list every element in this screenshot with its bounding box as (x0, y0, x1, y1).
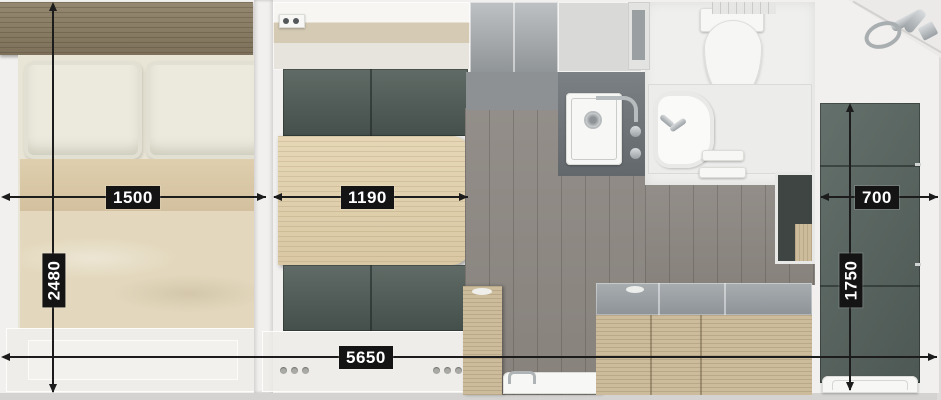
kitchen-unit-top (596, 283, 812, 315)
speaker-grille-left (280, 367, 309, 374)
arrow-left-icon (820, 193, 829, 201)
dim-line-overall-length (3, 356, 937, 358)
kitchen-unit-front (596, 315, 812, 395)
dinette-bench-bottom (283, 265, 468, 331)
dim-label-bed-width: 1500 (106, 186, 160, 209)
dim-label-wardrobe-width: 700 (855, 186, 899, 209)
arrow-left-icon (1, 193, 10, 201)
pillow-left (24, 61, 142, 159)
arrow-down-icon (49, 384, 57, 393)
arrow-right-icon (257, 193, 266, 201)
speaker-grille-right (433, 367, 462, 374)
towel-shelf-1 (702, 150, 744, 161)
pillow-right (146, 61, 264, 159)
arrow-up-icon (846, 103, 854, 112)
bathroom-roof-vent (712, 2, 776, 14)
arrow-left-icon (273, 193, 282, 201)
dim-label-wardrobe-depth: 1750 (839, 254, 862, 308)
headboard-shelf (0, 2, 253, 55)
refrigerator-cabinet (463, 286, 502, 395)
bathroom-tall-cabinet (628, 2, 650, 70)
roof-vent-icon (279, 14, 305, 28)
dim-label-overall-length: 5650 (339, 346, 393, 369)
dinette-bench-top (283, 69, 468, 136)
caravan-floorplan: 2480 1500 1190 700 1750 5650 (0, 0, 941, 400)
kitchen-overhead-lockers (470, 2, 558, 74)
arrow-down-icon (846, 382, 854, 391)
dim-label-bedroom-depth: 2480 (42, 254, 65, 308)
arrow-right-icon (928, 353, 937, 361)
arrow-right-icon (929, 193, 938, 201)
towel-shelf-2 (699, 167, 746, 178)
dim-label-table-length: 1190 (341, 186, 394, 209)
wardrobe (820, 103, 920, 383)
side-window (775, 172, 815, 264)
shower-head-icon (862, 6, 934, 50)
faucet-icon (596, 96, 638, 122)
dim-line-wardrobe-depth (849, 106, 851, 390)
arrow-up-icon (49, 2, 57, 11)
dim-line-bedroom-depth (52, 4, 54, 392)
faucet-knob-2 (630, 148, 641, 159)
bed-foot-storage-inner (28, 340, 238, 380)
basin-faucet-icon (659, 114, 685, 140)
dinette-overhead-lockers (273, 2, 470, 70)
counter-back-band (466, 72, 562, 110)
faucet-knob-1 (630, 126, 641, 137)
arrow-right-icon (459, 193, 468, 201)
shower-tray (822, 376, 918, 393)
arrow-left-icon (1, 353, 10, 361)
entrance-handle-icon (508, 371, 536, 384)
